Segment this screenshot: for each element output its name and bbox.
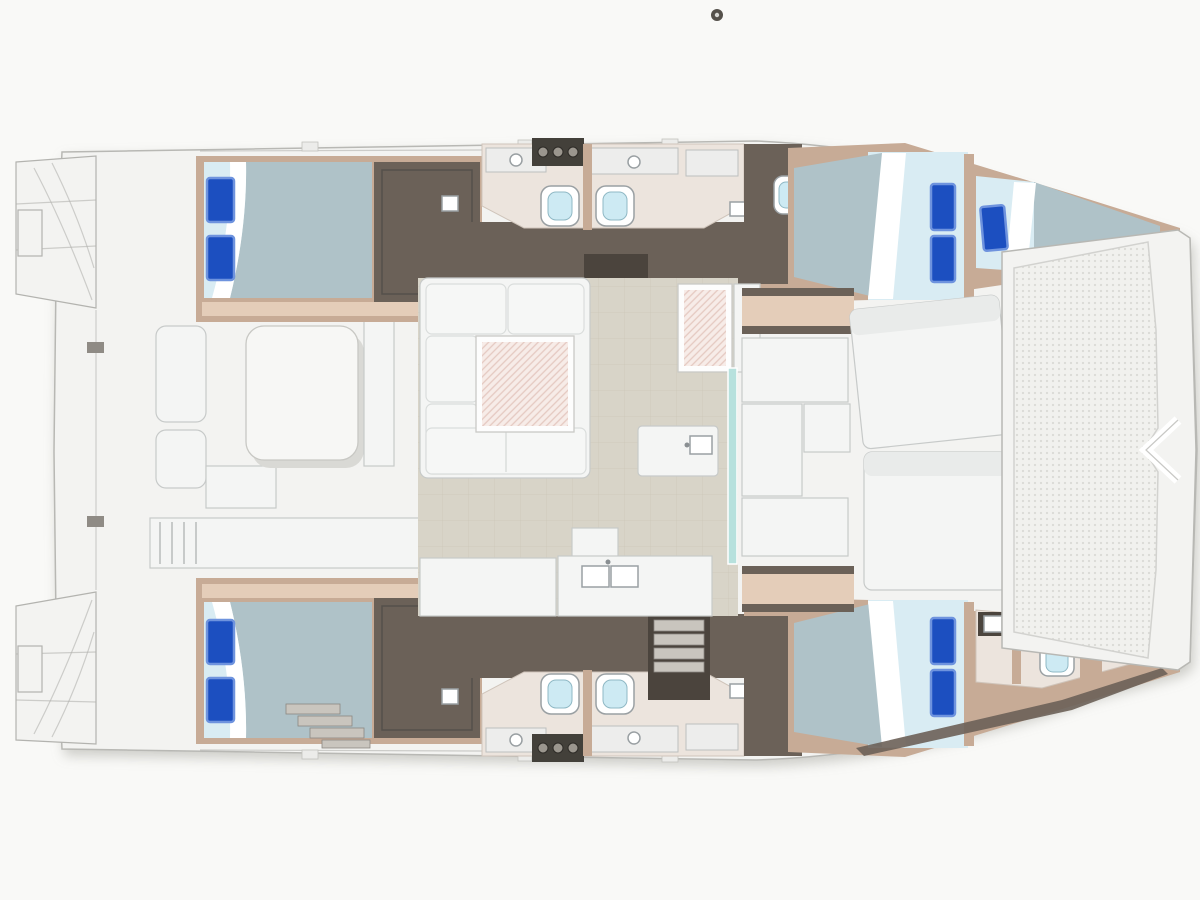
stbd-companionway-stairs bbox=[648, 612, 710, 700]
trampoline-net bbox=[1014, 242, 1158, 658]
chart-table-top bbox=[684, 290, 726, 366]
forward-bench-port bbox=[742, 288, 854, 334]
heads-divider-wall bbox=[583, 670, 592, 756]
stair-step bbox=[654, 620, 704, 631]
washbasin bbox=[510, 154, 522, 166]
floor-plan-page bbox=[0, 0, 1200, 900]
stair-step bbox=[654, 662, 704, 672]
faucet-icon bbox=[606, 560, 611, 565]
foredeck bbox=[1002, 230, 1196, 670]
washbasin bbox=[628, 156, 640, 168]
blue-pillow bbox=[207, 178, 234, 222]
bed-duvet bbox=[230, 162, 372, 298]
galley-sink bbox=[611, 566, 638, 587]
blue-pillow bbox=[207, 620, 234, 664]
blue-pillow bbox=[980, 205, 1008, 251]
burner bbox=[538, 743, 548, 753]
galley-appliance bbox=[572, 528, 618, 558]
sliding-glass-door bbox=[728, 368, 737, 564]
sun-pad-headrest bbox=[864, 452, 1008, 476]
bench-trim bbox=[742, 566, 854, 574]
vanity-counter bbox=[686, 724, 738, 750]
galley-sink bbox=[690, 436, 712, 454]
berth-divider bbox=[964, 154, 974, 298]
burner bbox=[553, 743, 563, 753]
starboard-boarding-step bbox=[18, 646, 42, 692]
transom-cleat-icon bbox=[87, 516, 104, 527]
faucet-icon bbox=[685, 443, 690, 448]
stair-step bbox=[654, 634, 704, 645]
forward-bench-starboard bbox=[742, 566, 854, 612]
blue-pillow bbox=[207, 236, 234, 280]
toilet-lid bbox=[603, 192, 627, 220]
bed-duvet bbox=[794, 153, 882, 299]
port-boarding-step bbox=[18, 210, 42, 256]
blue-pillow bbox=[931, 618, 955, 664]
lounge-module bbox=[804, 404, 850, 452]
aft-bench bbox=[150, 518, 422, 568]
deck-hatch bbox=[302, 142, 318, 151]
cockpit-side-seat bbox=[156, 326, 206, 422]
bench-trim bbox=[742, 326, 854, 334]
salon-table-top bbox=[482, 342, 568, 426]
blue-pillow bbox=[931, 670, 955, 716]
burner bbox=[553, 147, 563, 157]
lounge-modules bbox=[742, 338, 850, 556]
stair-step bbox=[654, 648, 704, 659]
galley-cabinet bbox=[420, 558, 556, 616]
stair-step bbox=[322, 740, 370, 748]
bed-duvet bbox=[794, 601, 882, 747]
shower-drain bbox=[730, 202, 745, 216]
burner bbox=[538, 147, 548, 157]
salon-table bbox=[476, 336, 574, 432]
settee-cushion bbox=[508, 284, 584, 334]
burner bbox=[568, 743, 578, 753]
cockpit-dining-table bbox=[246, 326, 358, 460]
washbasin bbox=[510, 734, 522, 746]
blue-pillow bbox=[931, 184, 955, 230]
stair-step bbox=[310, 728, 364, 738]
galley-sink bbox=[582, 566, 609, 587]
settee-cushion bbox=[426, 336, 478, 402]
shower-drain bbox=[730, 684, 745, 698]
sun-pad-port bbox=[849, 294, 1013, 449]
vanity-counter bbox=[686, 150, 738, 176]
stair-step bbox=[286, 704, 340, 714]
lounge-module bbox=[742, 498, 848, 556]
toilet-lid bbox=[548, 680, 572, 708]
sun-pad-starboard bbox=[864, 452, 1008, 590]
galley-island bbox=[638, 426, 718, 476]
shower-drain bbox=[442, 689, 458, 704]
washbasin bbox=[984, 616, 1002, 632]
shower-drain bbox=[442, 196, 458, 211]
mast-fitting-pin bbox=[715, 13, 719, 17]
toilet-lid bbox=[603, 680, 627, 708]
heads-divider-wall bbox=[583, 144, 592, 230]
burner-fixture bbox=[532, 734, 584, 762]
settee-cushion bbox=[426, 284, 506, 334]
cockpit-bench bbox=[364, 320, 394, 466]
toilet-lid bbox=[548, 192, 572, 220]
burner-fixture bbox=[532, 138, 584, 166]
bench-trim bbox=[742, 288, 854, 296]
blue-pillow bbox=[931, 236, 955, 282]
transom-cleat-icon bbox=[87, 342, 104, 353]
burner bbox=[568, 147, 578, 157]
washbasin bbox=[628, 732, 640, 744]
salon bbox=[418, 278, 760, 616]
masthead-fitting bbox=[711, 9, 723, 21]
blue-pillow bbox=[207, 678, 234, 722]
lounge-module bbox=[742, 404, 802, 496]
lounge-module bbox=[742, 338, 848, 402]
port-aft-double-bed bbox=[204, 162, 372, 298]
aft-cockpit bbox=[150, 320, 422, 568]
bench-trim bbox=[742, 604, 854, 612]
cockpit-side-seat bbox=[156, 430, 206, 488]
deck-hatch bbox=[302, 750, 318, 759]
stair-step bbox=[298, 716, 352, 726]
cockpit-low-table bbox=[206, 466, 276, 508]
port-hull-walls bbox=[410, 222, 748, 286]
catamaran-floor-plan bbox=[0, 0, 1200, 900]
